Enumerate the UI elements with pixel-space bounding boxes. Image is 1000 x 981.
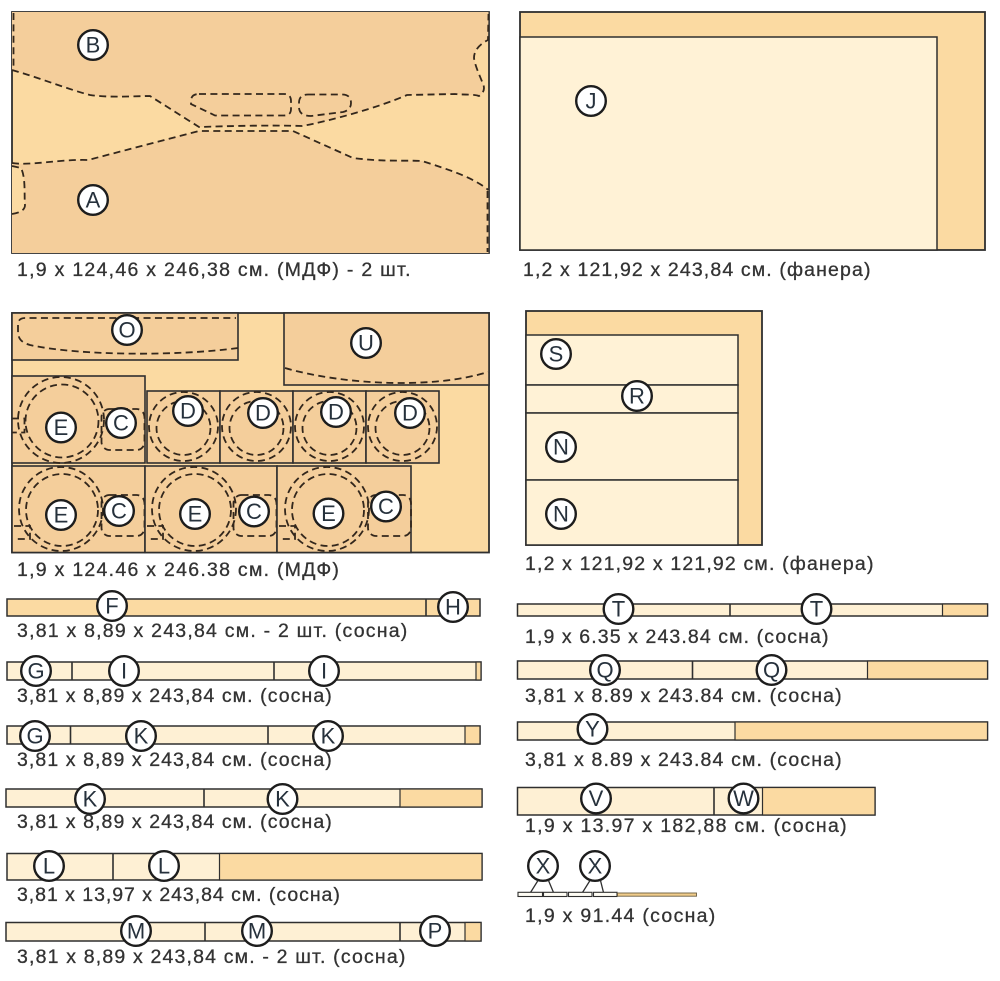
svg-text:E: E	[321, 501, 336, 526]
svg-text:U: U	[358, 331, 374, 356]
svg-text:L: L	[43, 854, 55, 879]
svg-text:D: D	[328, 400, 344, 425]
svg-text:L: L	[158, 854, 170, 879]
svg-text:K: K	[275, 787, 290, 812]
svg-text:C: C	[246, 499, 262, 524]
svg-text:3,81 х 8,89 х 243,84 см. - 2 ш: 3,81 х 8,89 х 243,84 см. - 2 шт. (сосна)	[17, 620, 409, 642]
svg-text:G: G	[26, 724, 43, 749]
svg-text:3,81 х 8,89 х 243,84 см. (сосн: 3,81 х 8,89 х 243,84 см. (сосна)	[17, 811, 333, 833]
svg-text:E: E	[54, 503, 69, 528]
svg-text:C: C	[378, 494, 394, 519]
svg-text:E: E	[54, 415, 69, 440]
svg-text:H: H	[445, 595, 461, 620]
svg-text:N: N	[553, 435, 569, 460]
svg-text:D: D	[402, 401, 418, 426]
svg-text:I: I	[121, 659, 127, 684]
svg-text:Y: Y	[585, 717, 600, 742]
svg-text:D: D	[180, 399, 196, 424]
svg-text:X: X	[588, 854, 603, 879]
svg-text:Q: Q	[763, 658, 780, 683]
svg-text:3,81 х 8,89 х 243,84 см. (сосн: 3,81 х 8,89 х 243,84 см. (сосна)	[17, 685, 333, 707]
svg-text:O: O	[118, 318, 135, 343]
svg-text:1,9 х 6.35 х 243.84 см. (сосна: 1,9 х 6.35 х 243.84 см. (сосна)	[525, 626, 830, 648]
svg-text:K: K	[321, 724, 336, 749]
svg-text:1,9 х 124.46 х 246.38 см. (МДФ: 1,9 х 124.46 х 246.38 см. (МДФ)	[17, 559, 340, 581]
svg-text:T: T	[612, 597, 625, 622]
svg-text:M: M	[127, 919, 145, 944]
svg-text:S: S	[549, 342, 564, 367]
svg-text:F: F	[105, 594, 118, 619]
svg-text:A: A	[86, 188, 101, 213]
svg-text:W: W	[733, 786, 754, 811]
svg-text:3,81 х 8.89 х 243.84 см. (сосн: 3,81 х 8.89 х 243.84 см. (сосна)	[525, 685, 843, 707]
svg-text:1,9 х 13.97 х 182,88 см. (сосн: 1,9 х 13.97 х 182,88 см. (сосна)	[525, 815, 848, 837]
svg-text:D: D	[255, 401, 271, 426]
svg-text:B: B	[86, 33, 101, 58]
svg-text:J: J	[586, 89, 597, 114]
svg-text:3,81 х 8.89 х 243.84 см. (сосн: 3,81 х 8.89 х 243.84 см. (сосна)	[525, 749, 843, 771]
svg-text:M: M	[248, 919, 266, 944]
svg-text:N: N	[553, 502, 569, 527]
svg-text:C: C	[113, 411, 129, 436]
svg-text:G: G	[27, 659, 44, 684]
svg-text:3,81 х 8,89 х 243,84 см. - 2 ш: 3,81 х 8,89 х 243,84 см. - 2 шт. (сосна)	[17, 946, 407, 968]
svg-text:V: V	[589, 786, 604, 811]
svg-text:T: T	[810, 597, 823, 622]
svg-text:K: K	[83, 787, 98, 812]
svg-text:P: P	[428, 919, 443, 944]
svg-text:I: I	[321, 659, 327, 684]
svg-text:E: E	[188, 502, 203, 527]
svg-text:X: X	[536, 854, 551, 879]
svg-text:1,9 х 91.44 (сосна): 1,9 х 91.44 (сосна)	[525, 905, 717, 927]
svg-text:Q: Q	[596, 658, 613, 683]
svg-text:R: R	[629, 384, 645, 409]
svg-text:1,2 х 121,92 х 121,92 см. (фан: 1,2 х 121,92 х 121,92 см. (фанера)	[525, 553, 875, 575]
svg-text:3,81 х 8,89 х 243,84 см. (сосн: 3,81 х 8,89 х 243,84 см. (сосна)	[17, 749, 333, 771]
svg-text:3,81 х 13,97 х 243,84 см. (сос: 3,81 х 13,97 х 243,84 см. (сосна)	[17, 884, 341, 906]
svg-text:C: C	[111, 499, 127, 524]
svg-text:K: K	[134, 724, 149, 749]
svg-text:1,9 х 124,46 х 246,38 см. (МДФ: 1,9 х 124,46 х 246,38 см. (МДФ) - 2 шт.	[17, 259, 412, 281]
svg-text:1,2 х 121,92 х 243,84 см. (фан: 1,2 х 121,92 х 243,84 см. (фанера)	[523, 259, 872, 281]
